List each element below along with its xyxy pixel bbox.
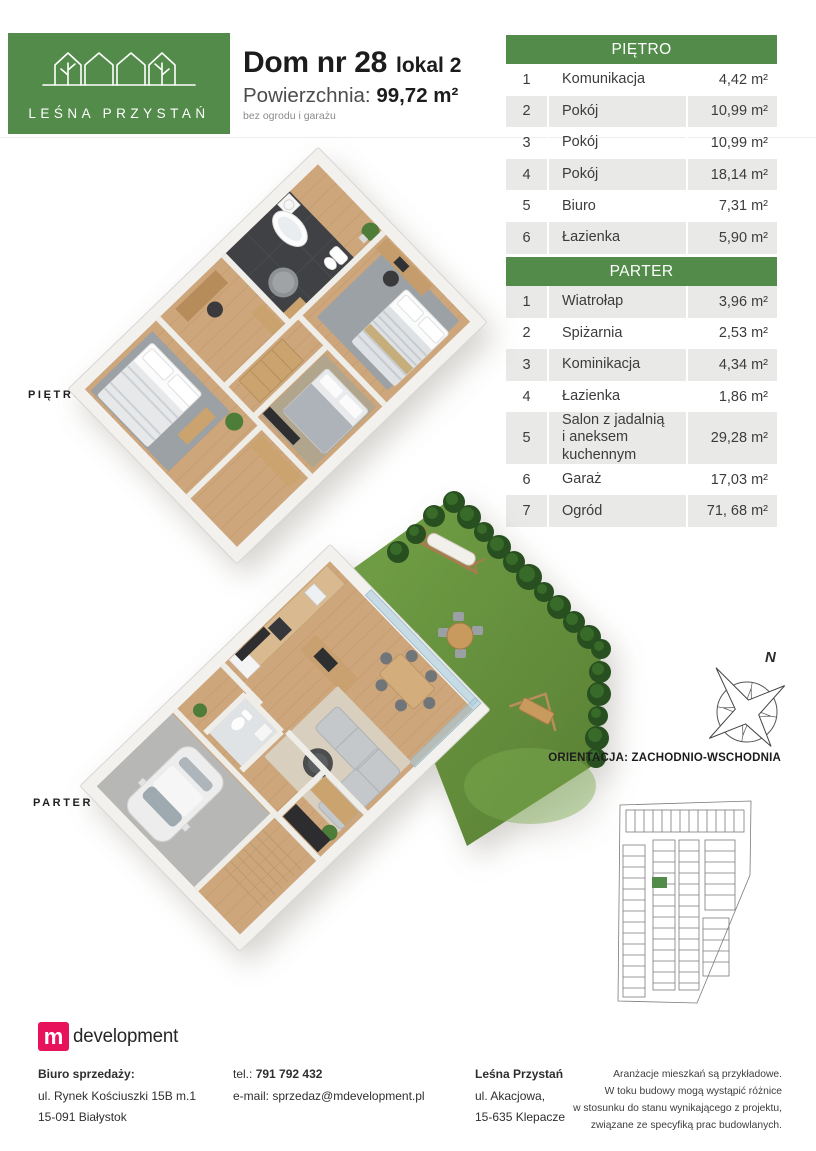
room-name: Łazienka (549, 222, 688, 254)
table-row: 5Salon z jadalnią i aneksem kuchennym29,… (506, 412, 777, 463)
room-number: 2 (506, 96, 549, 128)
mdevelopment-text: development (73, 1025, 178, 1048)
room-name: Kominikacja (549, 349, 688, 381)
phone-label: tel.: (233, 1067, 256, 1081)
disclaimer-line: w stosunku do stanu wynikającego z proje… (573, 1100, 782, 1117)
orientation-text: ORIENTACJA: ZACHODNIO-WSCHODNIA (548, 752, 781, 764)
mdevelopment-logo: m development (38, 1022, 182, 1051)
estate-address-1: ul. Akacjowa, (475, 1086, 565, 1108)
flyer-page: LEŚNA PRZYSTAŃ Dom nr 28 lokal 2 Powierz… (0, 0, 816, 1151)
brand-logo-box: LEŚNA PRZYSTAŃ (8, 33, 230, 134)
room-number: 4 (506, 159, 549, 191)
table-parter-header: PARTER (506, 257, 777, 286)
room-area: 71, 68 m² (688, 503, 777, 519)
room-name: Salon z jadalnią i aneksem kuchennym (549, 412, 688, 463)
table-row: 1Komunikacja4,42 m² (506, 64, 777, 96)
room-area: 4,42 m² (688, 72, 777, 88)
email-line: e-mail: sprzedaz@mdevelopment.pl (233, 1086, 425, 1108)
table-pietro-header: PIĘTRO (506, 35, 777, 64)
compass-north-label: N (765, 649, 777, 666)
room-name: Spiżarnia (549, 318, 688, 350)
houses-trees-icon (39, 44, 199, 98)
phone-number: 791 792 432 (256, 1067, 323, 1081)
compass-rose-icon: N (695, 640, 805, 770)
sales-office-block: Biuro sprzedaży: ul. Rynek Kościuszki 15… (38, 1064, 196, 1129)
area-note: bez ogrodu i garażu (243, 110, 336, 122)
table-row: 4Pokój18,14 m² (506, 159, 777, 191)
page-title: Dom nr 28 lokal 2 (243, 46, 461, 80)
room-name: Pokój (549, 127, 688, 159)
room-area: 10,99 m² (688, 135, 777, 151)
sales-office-title: Biuro sprzedaży: (38, 1064, 196, 1086)
estate-address-2: 15-635 Klepacze (475, 1107, 565, 1129)
room-number: 1 (506, 64, 549, 96)
room-name: Pokój (549, 96, 688, 128)
room-area: 10,99 m² (688, 103, 777, 119)
room-number: 5 (506, 412, 549, 463)
room-name: Komunikacja (549, 64, 688, 96)
disclaimer-line: W toku budowy mogą wystąpić różnice (573, 1083, 782, 1100)
site-plan-map (593, 790, 803, 1027)
room-area: 1,86 m² (688, 389, 777, 405)
room-number: 6 (506, 222, 549, 254)
table-row: 1Wiatrołap3,96 m² (506, 286, 777, 318)
total-area-line: Powierzchnia: 99,72 m² (243, 84, 458, 108)
table-row: 3Pokój10,99 m² (506, 127, 777, 159)
room-name: Pokój (549, 159, 688, 191)
email-label: e-mail: (233, 1089, 272, 1103)
room-area: 3,96 m² (688, 294, 777, 310)
room-name: Łazienka (549, 381, 688, 413)
sales-office-address-1: ul. Rynek Kościuszki 15B m.1 (38, 1086, 196, 1108)
brand-name: LEŚNA PRZYSTAŃ (28, 106, 209, 121)
estate-name: Leśna Przystań (475, 1064, 565, 1086)
room-number: 4 (506, 381, 549, 413)
room-number: 3 (506, 349, 549, 381)
room-area: 17,03 m² (688, 472, 777, 488)
table-row: 3Kominikacja4,34 m² (506, 349, 777, 381)
room-area: 2,53 m² (688, 325, 777, 341)
estate-address-block: Leśna Przystań ul. Akacjowa, 15-635 Klep… (475, 1064, 565, 1129)
table-row: 2Spiżarnia2,53 m² (506, 318, 777, 350)
area-label: Powierzchnia: (243, 84, 376, 107)
mdevelopment-mark: m (38, 1022, 69, 1051)
table-row: 5Biuro7,31 m² (506, 190, 777, 222)
phone-line: tel.: 791 792 432 (233, 1064, 425, 1086)
site-plan-highlight (652, 877, 667, 888)
room-area: 4,34 m² (688, 357, 777, 373)
room-number: 1 (506, 286, 549, 318)
room-area: 18,14 m² (688, 167, 777, 183)
sales-office-address-2: 15-091 Białystok (38, 1107, 196, 1129)
table-pietro: PIĘTRO 1Komunikacja4,42 m² 2Pokój10,99 m… (506, 35, 777, 254)
table-row: 6Łazienka5,90 m² (506, 222, 777, 254)
area-value: 99,72 m² (376, 84, 458, 107)
room-number: 3 (506, 127, 549, 159)
room-number: 5 (506, 190, 549, 222)
floorplan-parter-illustration (68, 486, 612, 1016)
unit-title: lokal 2 (396, 54, 461, 78)
disclaimer-text: Aranżacje mieszkań są przykładowe. W tok… (573, 1066, 782, 1134)
room-area: 29,28 m² (688, 430, 777, 446)
room-number: 2 (506, 318, 549, 350)
email-address: sprzedaz@mdevelopment.pl (272, 1089, 424, 1103)
contact-block: tel.: 791 792 432 e-mail: sprzedaz@mdeve… (233, 1064, 425, 1107)
table-row: 4Łazienka1,86 m² (506, 381, 777, 413)
room-name: Biuro (549, 190, 688, 222)
disclaimer-line: związane ze specyfiką prac budowlanych. (573, 1117, 782, 1134)
house-number-title: Dom nr 28 (243, 46, 387, 80)
room-area: 7,31 m² (688, 198, 777, 214)
room-name: Wiatrołap (549, 286, 688, 318)
disclaimer-line: Aranżacje mieszkań są przykładowe. (573, 1066, 782, 1083)
table-row: 2Pokój10,99 m² (506, 96, 777, 128)
room-area: 5,90 m² (688, 230, 777, 246)
